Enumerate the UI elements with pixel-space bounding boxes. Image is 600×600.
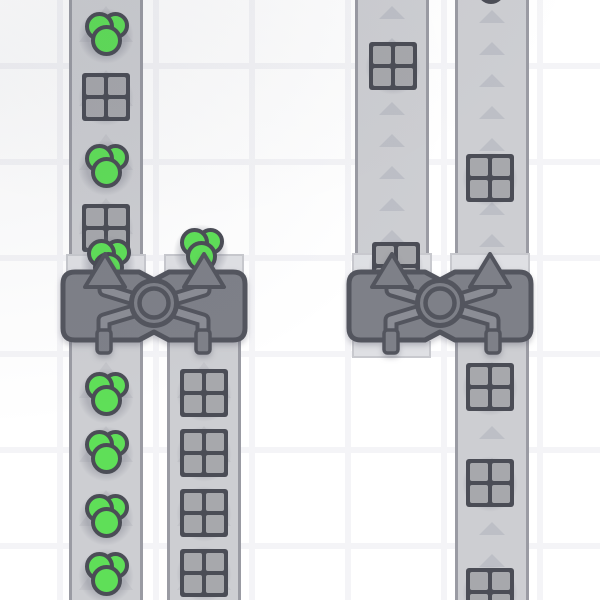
balancer-ring-inner	[426, 289, 455, 318]
machines-canvas	[0, 0, 600, 600]
output-port	[97, 330, 111, 353]
output-port	[486, 330, 500, 353]
balancer-left[interactable]	[63, 254, 245, 353]
machine-layer	[0, 0, 600, 600]
balancer-ring-inner	[140, 289, 169, 318]
output-port	[384, 330, 398, 353]
output-port	[196, 330, 210, 353]
game-viewport	[0, 0, 600, 600]
balancer-right[interactable]	[349, 254, 531, 353]
